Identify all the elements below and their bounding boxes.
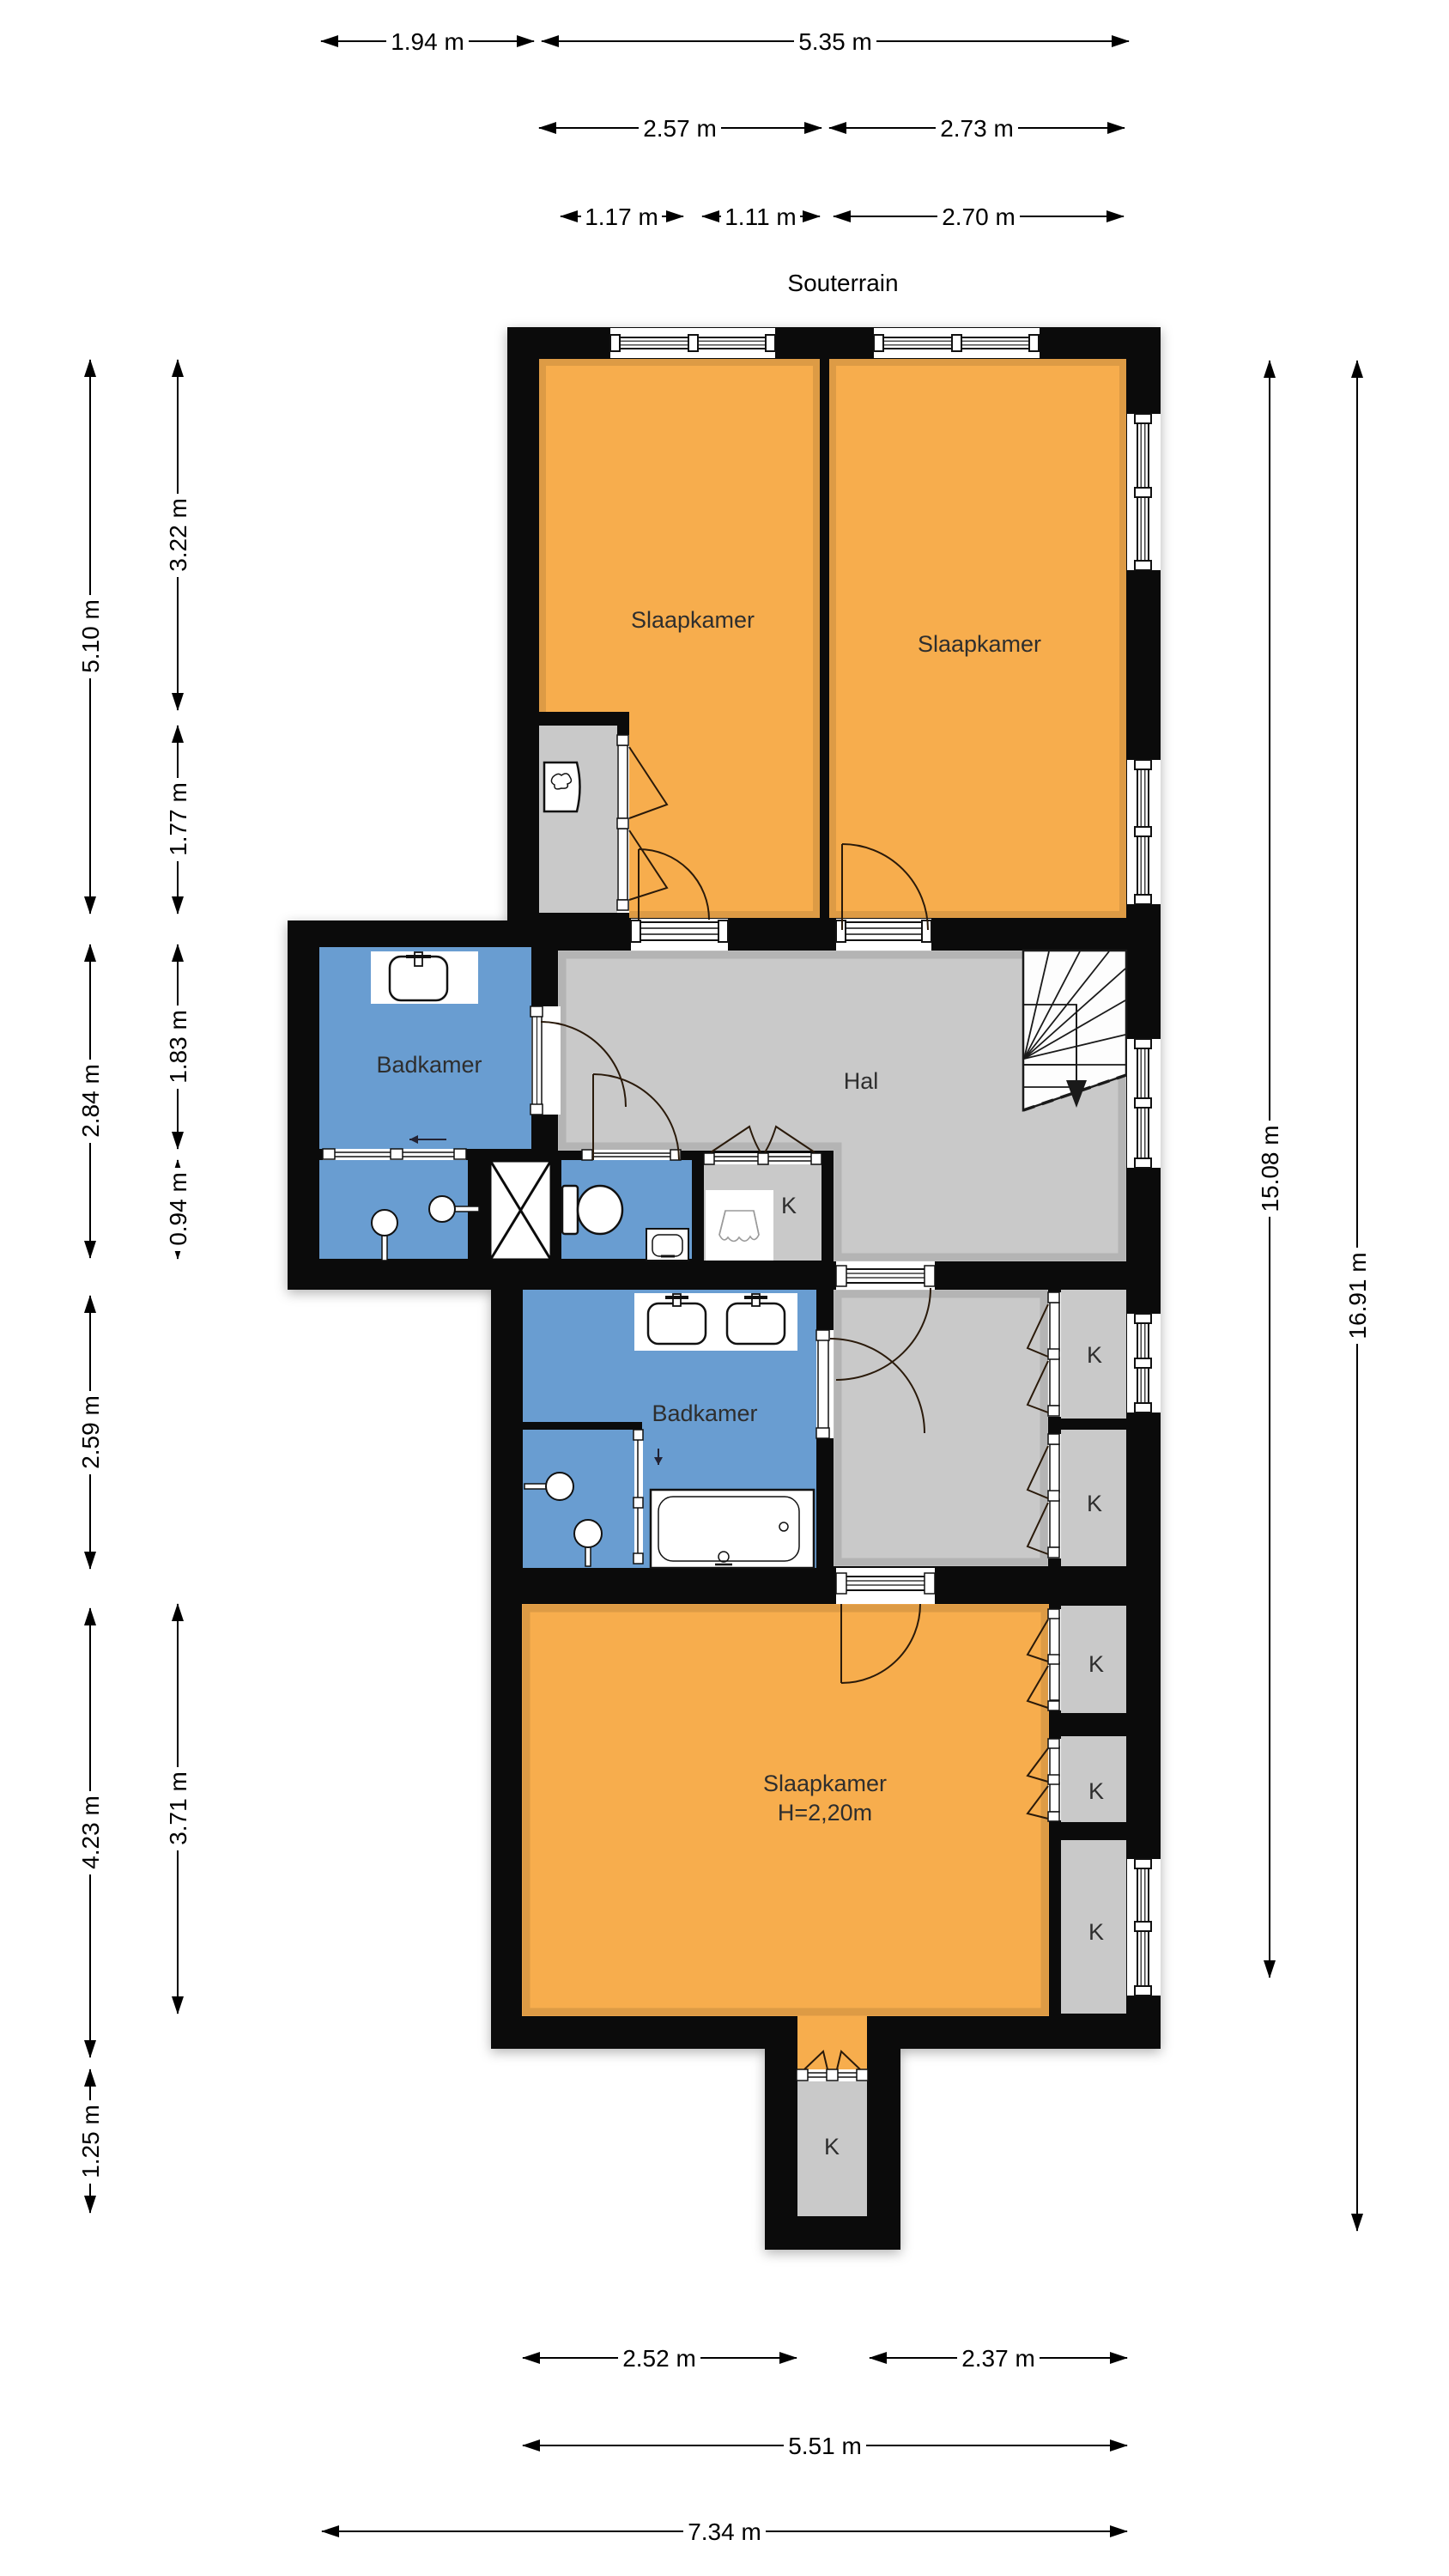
svg-text:Slaapkamer: Slaapkamer [918,631,1041,657]
svg-text:2.73 m: 2.73 m [940,115,1014,142]
svg-text:2.37 m: 2.37 m [961,2345,1035,2372]
svg-text:Badkamer: Badkamer [376,1052,482,1078]
svg-text:3.22 m: 3.22 m [165,498,191,572]
svg-text:3.71 m: 3.71 m [165,1771,191,1845]
svg-text:Badkamer: Badkamer [652,1400,757,1426]
svg-text:15.08 m: 15.08 m [1257,1125,1283,1212]
svg-text:K: K [1087,1491,1102,1516]
svg-text:5.10 m: 5.10 m [77,599,104,673]
svg-text:Souterrain: Souterrain [787,270,898,296]
svg-text:0.94 m: 0.94 m [165,1172,191,1246]
svg-text:K: K [1088,1919,1104,1945]
svg-text:1.25 m: 1.25 m [77,2105,104,2178]
svg-text:2.52 m: 2.52 m [622,2345,696,2372]
svg-text:5.35 m: 5.35 m [798,28,872,55]
svg-text:K: K [1088,1778,1104,1804]
svg-text:4.23 m: 4.23 m [77,1795,104,1869]
svg-text:2.59 m: 2.59 m [77,1395,104,1469]
svg-text:K: K [1087,1342,1102,1368]
svg-text:Slaapkamer: Slaapkamer [763,1771,887,1796]
svg-text:K: K [781,1193,797,1218]
svg-text:Slaapkamer: Slaapkamer [631,607,755,633]
svg-text:1.83 m: 1.83 m [165,1010,191,1084]
svg-text:1.94 m: 1.94 m [391,28,464,55]
svg-text:2.70 m: 2.70 m [942,204,1016,230]
svg-text:K: K [1088,1651,1104,1677]
svg-text:16.91 m: 16.91 m [1344,1252,1371,1339]
svg-text:2.84 m: 2.84 m [77,1064,104,1138]
svg-text:5.51 m: 5.51 m [788,2433,862,2459]
svg-text:Hal: Hal [844,1068,879,1094]
svg-text:1.11 m: 1.11 m [724,204,797,230]
svg-text:K: K [824,2134,840,2160]
svg-text:1.17 m: 1.17 m [585,204,658,230]
svg-text:H=2,20m: H=2,20m [778,1800,872,1826]
svg-text:1.77 m: 1.77 m [165,782,191,856]
svg-text:7.34 m: 7.34 m [688,2518,761,2545]
svg-text:2.57 m: 2.57 m [643,115,717,142]
